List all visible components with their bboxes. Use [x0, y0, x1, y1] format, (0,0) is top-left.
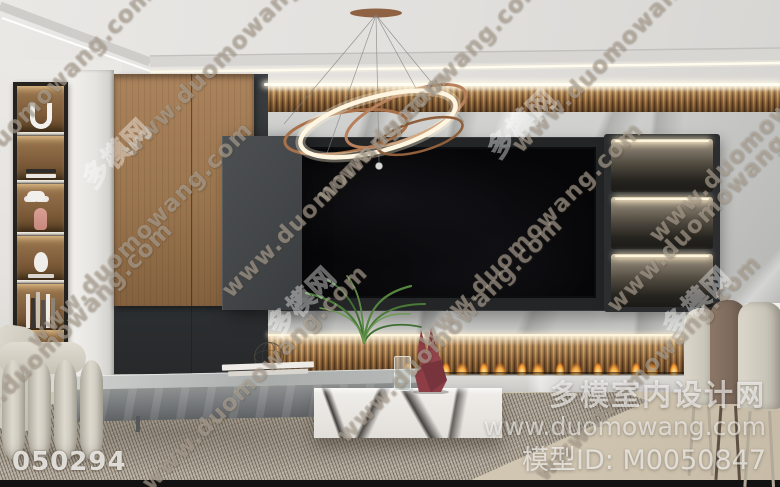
- image-bottom-edge: [0, 480, 780, 487]
- right-shelf-unit: [604, 134, 720, 312]
- site-url: www.duomowang.com: [484, 413, 766, 442]
- stacked-books: [26, 169, 56, 178]
- book-base: [28, 274, 54, 278]
- photo-id-watermark: 050294: [12, 447, 127, 477]
- brand-watermark-block: 多模室内设计网 www.duomowang.com 模型ID: M0050847: [484, 379, 766, 476]
- niche-shelf-4: [17, 236, 64, 280]
- model-id: 模型ID: M0050847: [484, 445, 766, 476]
- chair-channels: [2, 360, 103, 460]
- pink-figurine: [34, 208, 47, 230]
- lit-niche-1: [611, 139, 713, 192]
- lit-niche-2: [611, 197, 713, 250]
- u-sculpture: [30, 103, 52, 129]
- rabbit-sculpture: [406, 328, 456, 394]
- head-sculpture: [34, 252, 48, 272]
- marble-block-table: [314, 388, 502, 438]
- niche-shelf-3: [17, 184, 64, 232]
- niche-shelf-5: [17, 284, 64, 330]
- vertical-books: [26, 292, 55, 328]
- chair-leg: [768, 411, 775, 487]
- lit-niche-3: [611, 254, 713, 307]
- table-leg: [136, 416, 140, 432]
- site-name-cn: 多模室内设计网: [484, 379, 766, 412]
- cloud-ornament: [27, 191, 45, 201]
- lounge-chair: [0, 330, 106, 466]
- display-niche: [13, 82, 68, 366]
- ring-chandelier: [268, 4, 492, 182]
- niche-shelf-1: [17, 86, 64, 132]
- interior-render-living-room: www.duomowang.com www.duomowang.com www.…: [0, 0, 780, 487]
- niche-shelf-2: [17, 136, 64, 180]
